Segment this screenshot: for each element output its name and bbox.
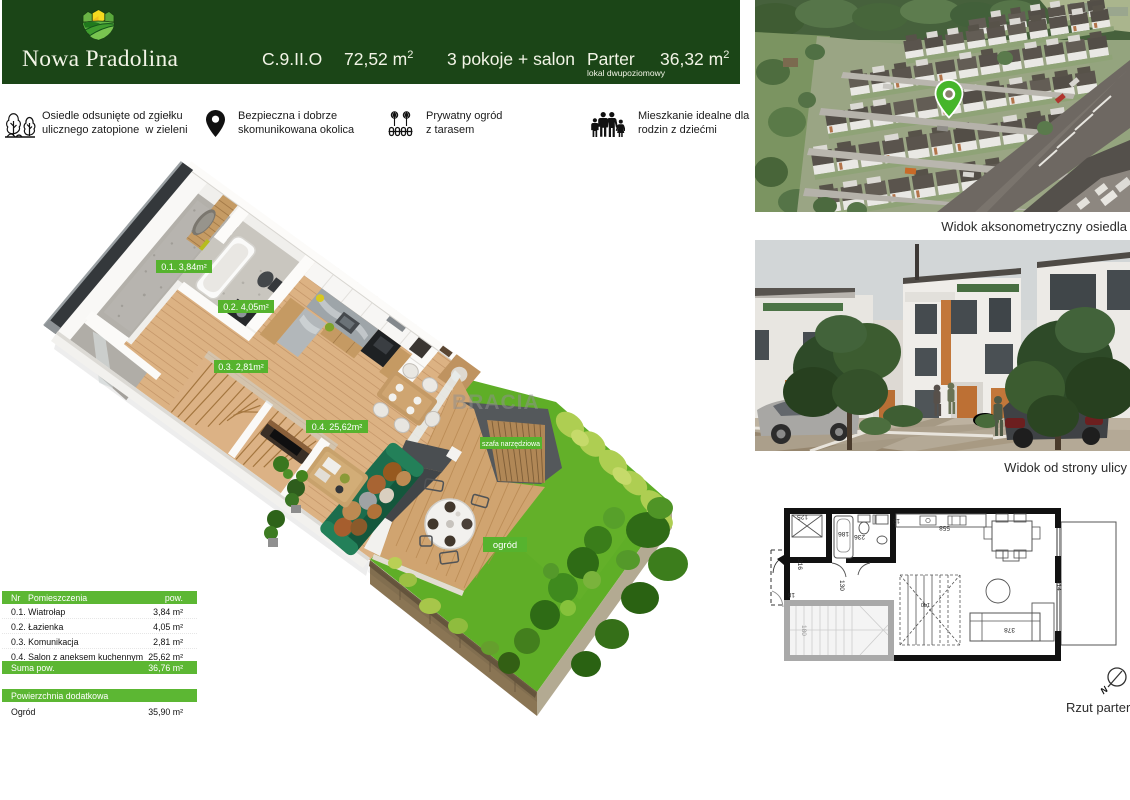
svg-text:0.2. 4,05m²: 0.2. 4,05m² bbox=[223, 302, 269, 312]
svg-text:236: 236 bbox=[854, 533, 865, 540]
svg-text:0.3. 2,81m²: 0.3. 2,81m² bbox=[218, 362, 264, 372]
svg-text:514: 514 bbox=[1055, 580, 1062, 591]
svg-text:0.4. 25,62m²: 0.4. 25,62m² bbox=[312, 422, 363, 432]
svg-text:186: 186 bbox=[838, 530, 849, 537]
svg-text:125: 125 bbox=[797, 513, 808, 520]
svg-text:12: 12 bbox=[892, 517, 900, 524]
svg-text:BRACIA: BRACIA bbox=[452, 391, 540, 414]
svg-text:180: 180 bbox=[800, 625, 807, 636]
svg-text:18: 18 bbox=[787, 591, 795, 598]
svg-text:0.1. 3,84m²: 0.1. 3,84m² bbox=[161, 262, 207, 272]
svg-text:szafa narzędziowa: szafa narzędziowa bbox=[482, 441, 540, 448]
svg-text:316: 316 bbox=[796, 559, 803, 570]
svg-text:130: 130 bbox=[838, 580, 845, 591]
svg-text:378: 378 bbox=[1004, 626, 1015, 633]
svg-text:ogród: ogród bbox=[493, 540, 517, 551]
svg-text:140: 140 bbox=[921, 601, 930, 607]
svg-text:558: 558 bbox=[939, 524, 950, 531]
